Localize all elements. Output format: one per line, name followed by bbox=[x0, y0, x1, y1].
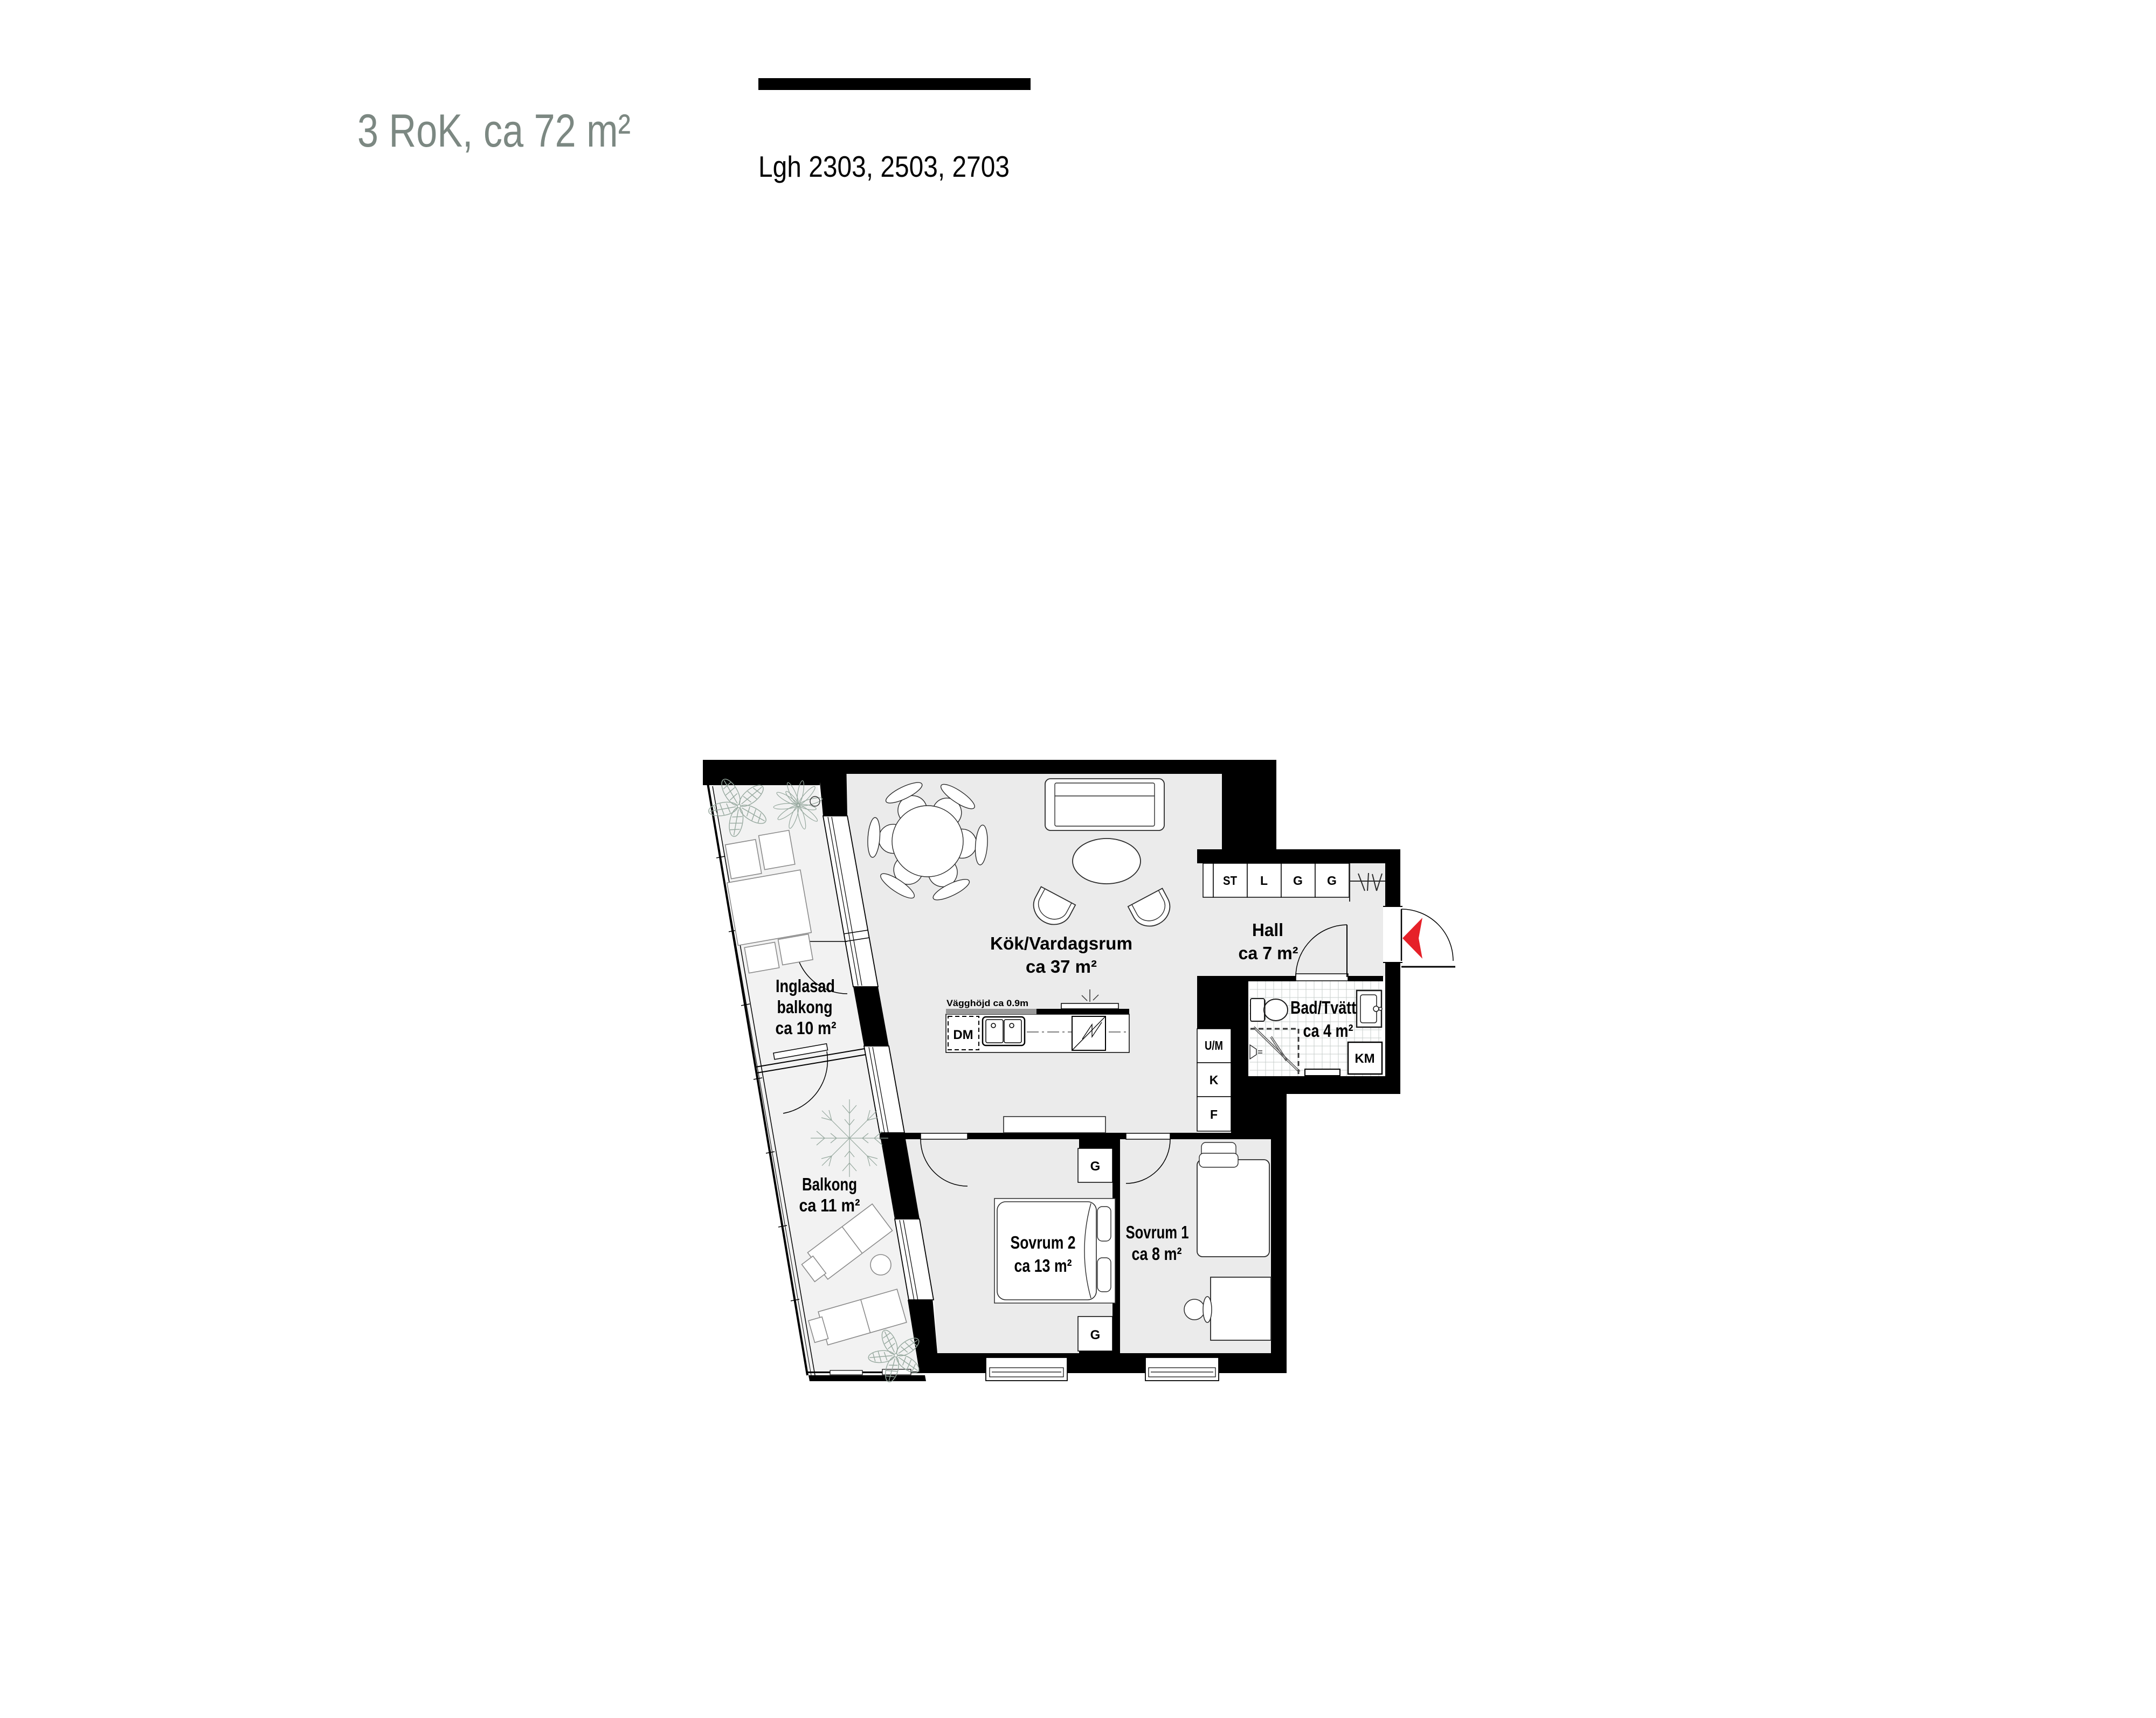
svg-text:Sovrum 2: Sovrum 2 bbox=[1011, 1232, 1076, 1252]
svg-text:G: G bbox=[1327, 874, 1337, 888]
svg-text:ca 11 m²: ca 11 m² bbox=[799, 1195, 860, 1215]
svg-text:G: G bbox=[1090, 1159, 1101, 1174]
svg-text:ST: ST bbox=[1223, 874, 1237, 888]
svg-text:ca 37 m²: ca 37 m² bbox=[1026, 957, 1097, 976]
svg-text:F: F bbox=[1210, 1107, 1218, 1121]
svg-text:ca 13 m²: ca 13 m² bbox=[1014, 1256, 1072, 1276]
svg-text:Inglasad: Inglasad bbox=[776, 976, 835, 996]
svg-text:G: G bbox=[1293, 874, 1303, 888]
svg-text:Lgh 2303, 2503, 2703: Lgh 2303, 2503, 2703 bbox=[758, 150, 1010, 183]
svg-text:Balkong: Balkong bbox=[802, 1174, 857, 1194]
svg-text:Sovrum 1: Sovrum 1 bbox=[1126, 1222, 1189, 1242]
svg-text:balkong: balkong bbox=[777, 997, 833, 1017]
svg-text:Kök/Vardagsrum: Kök/Vardagsrum bbox=[990, 933, 1132, 953]
svg-text:ca 7 m²: ca 7 m² bbox=[1239, 943, 1298, 963]
svg-text:Vägghöjd ca 0.9m: Vägghöjd ca 0.9m bbox=[946, 998, 1028, 1008]
svg-text:K: K bbox=[1210, 1073, 1219, 1087]
svg-text:ca 4 m²: ca 4 m² bbox=[1303, 1021, 1353, 1041]
svg-text:ca 10 m²: ca 10 m² bbox=[776, 1018, 837, 1038]
svg-text:U/M: U/M bbox=[1205, 1038, 1223, 1052]
svg-text:KM: KM bbox=[1355, 1051, 1374, 1066]
svg-text:ca 8 m²: ca 8 m² bbox=[1132, 1244, 1182, 1264]
svg-text:3 RoK, ca 72 m²: 3 RoK, ca 72 m² bbox=[357, 105, 631, 157]
svg-text:DM: DM bbox=[953, 1028, 973, 1042]
svg-text:L: L bbox=[1260, 874, 1268, 888]
svg-text:Bad/Tvätt: Bad/Tvätt bbox=[1290, 997, 1356, 1017]
svg-text:G: G bbox=[1090, 1328, 1101, 1342]
svg-text:Hall: Hall bbox=[1252, 920, 1283, 940]
